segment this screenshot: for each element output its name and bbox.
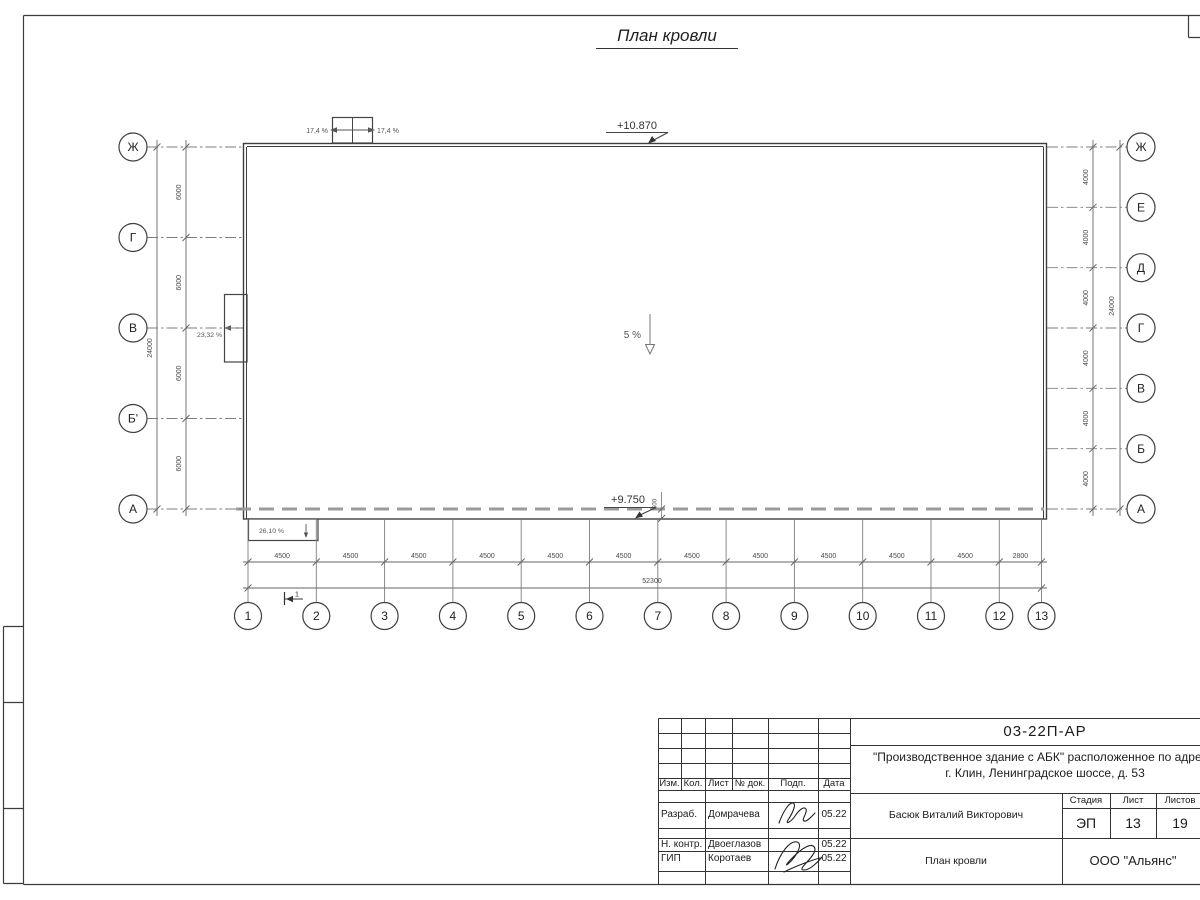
dim-label: 6000 (176, 456, 183, 472)
inner-wall-line (247, 147, 1044, 519)
dim-label: 6000 (176, 184, 183, 200)
skylight-slope-label-right: 17,4 % (377, 128, 399, 135)
axis-bubble-label: Ж (127, 140, 138, 154)
main-slope-label: 5 % (624, 330, 641, 341)
main-slope-mark: 5 % (624, 314, 655, 354)
axis-bubble-label: В (129, 321, 137, 335)
signature-dvoeglazov-korotaev (775, 842, 822, 872)
elevation-mark-top: +10.870 (606, 120, 668, 144)
frame-margin-boxes (4, 627, 24, 884)
col-header-kol: Кол. (681, 778, 705, 790)
main-slope-arrowhead-icon (646, 345, 655, 355)
sheet-label: Лист (1110, 793, 1156, 808)
axis-bubble-label: 5 (518, 609, 525, 623)
dim-label: 4000 (1083, 230, 1090, 246)
row-name: Коротаев (708, 851, 768, 867)
dim-label: 4500 (274, 553, 290, 560)
col-header-data: Дата (818, 778, 850, 790)
stage-label: Стадия (1062, 793, 1110, 808)
elevation-bottom-label: +9.750 (611, 494, 645, 506)
col-header-podp: Подп. (768, 778, 818, 790)
parapet-offset-label: 600 (652, 498, 659, 509)
dim-label: 52300 (642, 578, 662, 585)
elevation-top-leader (606, 133, 668, 142)
company-name: ООО "Альянс" (1062, 838, 1200, 884)
signature-domracheva (779, 803, 815, 823)
south-canopy-slope-label: 26,10 % (259, 528, 284, 535)
axis-bubble-label: 8 (723, 609, 730, 623)
axis-bubble-label: 12 (993, 609, 1007, 623)
axis-bubble-label: А (1137, 502, 1145, 516)
axis-bubble-label: Е (1137, 201, 1145, 215)
axes-and-dimensions: ЖГВБ'А600060006000600024000ЖЕДГВБА400040… (119, 133, 1155, 630)
dim-label: 4500 (821, 553, 837, 560)
dim-label: 4500 (889, 553, 905, 560)
dim-label: 4000 (1083, 290, 1090, 306)
skylight: 17,4 % 17,4 % (306, 118, 399, 144)
dim-label: 4000 (1083, 169, 1090, 185)
col-header-doc: № док. (732, 778, 768, 790)
dim-label: 4500 (343, 553, 359, 560)
row-role: ГИП (661, 851, 707, 867)
approver-name: Басюк Виталий Викторович (850, 793, 1062, 838)
elevation-bottom-arrowhead-icon (635, 512, 643, 519)
dim-label: 2800 (1013, 553, 1029, 560)
col-header-list: Лист (705, 778, 732, 790)
detail-mark-label: 1 (295, 590, 299, 599)
sheet-value: 13 (1110, 808, 1156, 838)
outer-wall (244, 144, 1047, 520)
axis-bubble-label: 7 (654, 609, 661, 623)
dim-label: 24000 (1109, 296, 1116, 316)
axis-bubble-label: Б' (128, 412, 138, 426)
dim-label: 4500 (616, 553, 632, 560)
row-date: 05.22 (818, 838, 850, 851)
elevation-mark-bottom: +9.750 600 (604, 492, 665, 522)
dim-label: 4500 (479, 553, 495, 560)
axis-bubble-label: 4 (450, 609, 457, 623)
dim-label: 4500 (684, 553, 700, 560)
signatures (775, 803, 822, 872)
axis-bubble-label: Б (1137, 442, 1145, 456)
row-date: 05.22 (818, 802, 850, 828)
doc-number: 03-22П-АР (850, 718, 1200, 745)
axis-bubble-label: 6 (586, 609, 593, 623)
dim-label: 4500 (957, 553, 973, 560)
plan-drawing: 17,4 % 17,4 % 23,32 % 26,10 % +10.870 5 … (0, 0, 1200, 900)
axis-bubble-label: 9 (791, 609, 798, 623)
project-name-line1: "Производственное здание с АБК" располож… (850, 750, 1200, 765)
stage-value: ЭП (1062, 808, 1110, 838)
west-canopy-slope-label: 23,32 % (197, 332, 222, 339)
elevation-top-label: +10.870 (617, 120, 657, 132)
col-header-izm: Изм. (658, 778, 681, 790)
dim-label: 4000 (1083, 350, 1090, 366)
building-outline (244, 144, 1047, 520)
row-role: Н. контр. (661, 838, 707, 851)
row-name: Двоеглазов (708, 838, 768, 851)
drawing-sheet: { "sheet": { "title": "План кровли" }, "… (0, 0, 1200, 900)
south-canopy: 26,10 % (249, 519, 319, 541)
dim-label: 6000 (176, 275, 183, 291)
row-date: 05.22 (818, 851, 850, 867)
dim-label: 4500 (752, 553, 768, 560)
axis-bubble-label: 2 (313, 609, 320, 623)
axis-bubble-label: А (129, 502, 137, 516)
sheets-label: Листов (1156, 793, 1200, 808)
frame-corner-box (1189, 16, 1200, 38)
axis-bubble-label: 10 (856, 609, 870, 623)
sheets-value: 19 (1156, 808, 1200, 838)
axis-bubble-label: Ж (1135, 140, 1146, 154)
dim-label: 4000 (1083, 411, 1090, 427)
row-role: Разраб. (661, 802, 705, 828)
skylight-slope-label-left: 17,4 % (306, 128, 328, 135)
dim-label: 4500 (548, 553, 564, 560)
detail-mark: 1 (285, 590, 304, 606)
axis-bubble-label: Г (130, 231, 137, 245)
drawing-name: План кровли (850, 838, 1062, 884)
dim-label: 4500 (411, 553, 427, 560)
dim-label: 4000 (1083, 471, 1090, 487)
row-name: Домрачева (708, 802, 768, 828)
axis-bubble-label: 3 (381, 609, 388, 623)
axis-bubble-label: 13 (1035, 609, 1049, 623)
axis-bubble-label: 1 (245, 609, 252, 623)
axis-bubble-label: Д (1137, 261, 1145, 275)
detail-mark-arrowhead-icon (286, 596, 293, 602)
elevation-top-arrowhead-icon (648, 136, 656, 144)
dim-label: 24000 (147, 338, 154, 358)
axis-bubble-label: Г (1138, 321, 1145, 335)
axis-bubble-label: В (1137, 382, 1145, 396)
sheet-title: План кровли (596, 26, 738, 49)
dim-label: 6000 (176, 365, 183, 381)
axis-bubble-label: 11 (925, 609, 938, 623)
project-name-line2: г. Клин, Ленинградское шоссе, д. 53 (850, 766, 1200, 781)
